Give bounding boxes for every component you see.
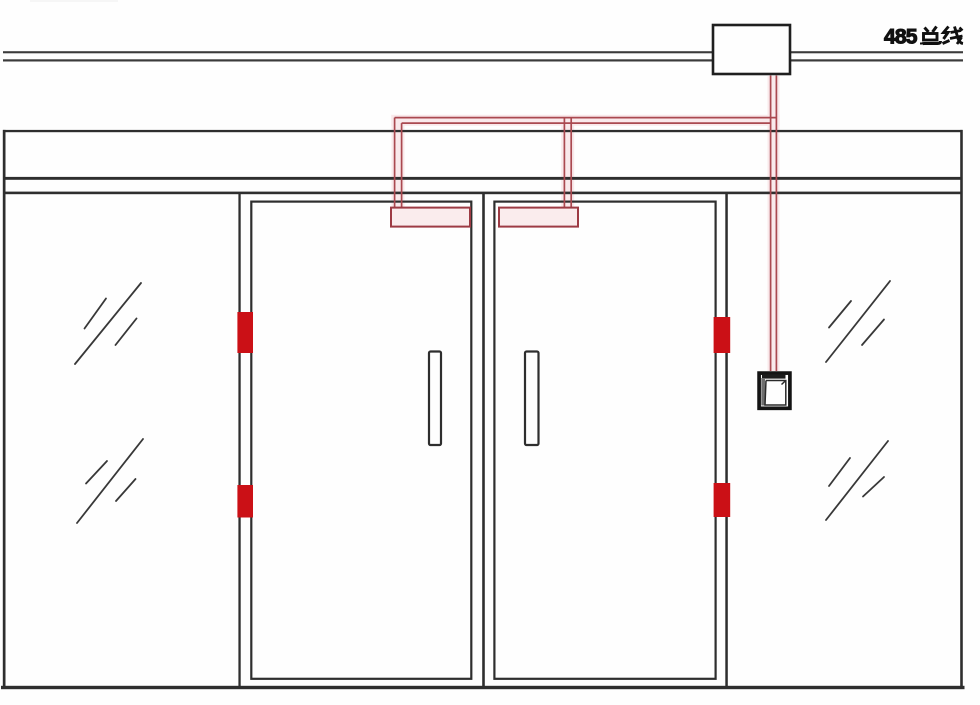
svg-text:485: 485: [884, 26, 918, 49]
